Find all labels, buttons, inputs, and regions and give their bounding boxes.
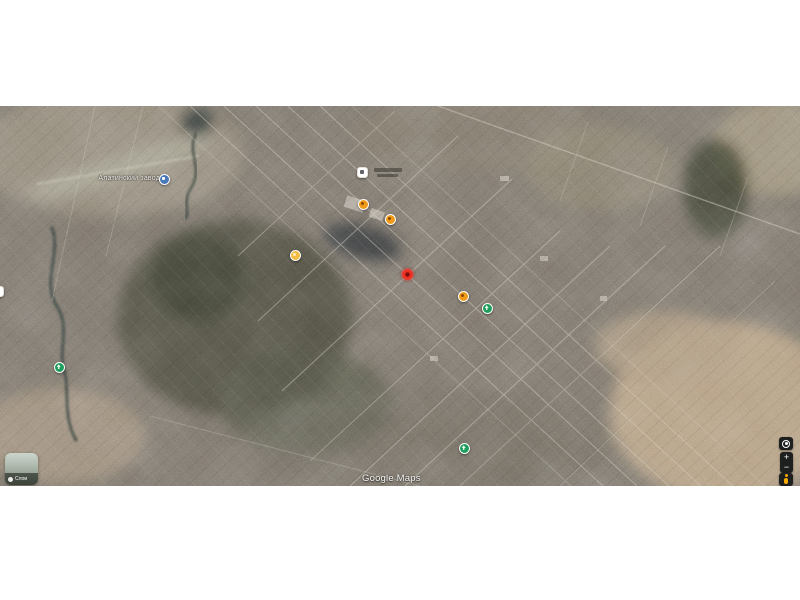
orange-marker-glyph bbox=[388, 217, 392, 221]
green-marker-glyph bbox=[485, 305, 489, 310]
my-location-button[interactable] bbox=[779, 437, 793, 450]
orange-marker-glyph bbox=[361, 202, 365, 206]
poi-orange-marker-1[interactable] bbox=[358, 199, 369, 210]
poi-blue-marker[interactable] bbox=[159, 174, 170, 185]
pegman-icon bbox=[784, 478, 788, 485]
map-place-label[interactable]: Алатинский завод bbox=[86, 175, 160, 183]
zoom-in-button[interactable]: + bbox=[780, 452, 793, 463]
poi-amber-marker[interactable] bbox=[290, 250, 301, 261]
poi-white-marker-glyph bbox=[360, 170, 364, 174]
pegman-button[interactable] bbox=[779, 473, 793, 486]
layers-button[interactable]: Слои bbox=[5, 453, 38, 485]
poi-green-marker-3[interactable] bbox=[459, 443, 470, 454]
street-grid-texture bbox=[0, 106, 800, 486]
poi-green-marker-1[interactable] bbox=[482, 303, 493, 314]
poi-white-clipped[interactable] bbox=[0, 286, 4, 297]
layers-button-bar: Слои bbox=[5, 473, 38, 485]
selected-location-dot[interactable] bbox=[401, 268, 414, 281]
satellite-map-view[interactable]: Алатинский завод Google Maps Слои + − bbox=[0, 106, 800, 486]
green-marker-glyph bbox=[57, 364, 61, 369]
google-maps-watermark: Google Maps bbox=[362, 473, 421, 484]
zoom-out-button[interactable]: − bbox=[780, 463, 793, 474]
poi-label-blur bbox=[377, 174, 398, 177]
listing-image-canvas: Алатинский завод Google Maps Слои + − bbox=[0, 0, 800, 600]
target-icon bbox=[782, 440, 790, 448]
layers-icon bbox=[8, 477, 13, 482]
blue-marker-glyph bbox=[162, 177, 165, 180]
green-marker-glyph bbox=[462, 445, 466, 450]
amber-marker-glyph bbox=[293, 253, 297, 257]
layers-label: Слои bbox=[15, 477, 27, 482]
orange-marker-glyph bbox=[461, 294, 465, 298]
poi-orange-marker-2[interactable] bbox=[385, 214, 396, 225]
poi-green-marker-2[interactable] bbox=[54, 362, 65, 373]
poi-orange-marker-3[interactable] bbox=[458, 291, 469, 302]
poi-factory-icon[interactable] bbox=[357, 167, 368, 178]
poi-label-blur bbox=[374, 168, 402, 172]
zoom-control: + − bbox=[780, 452, 793, 473]
